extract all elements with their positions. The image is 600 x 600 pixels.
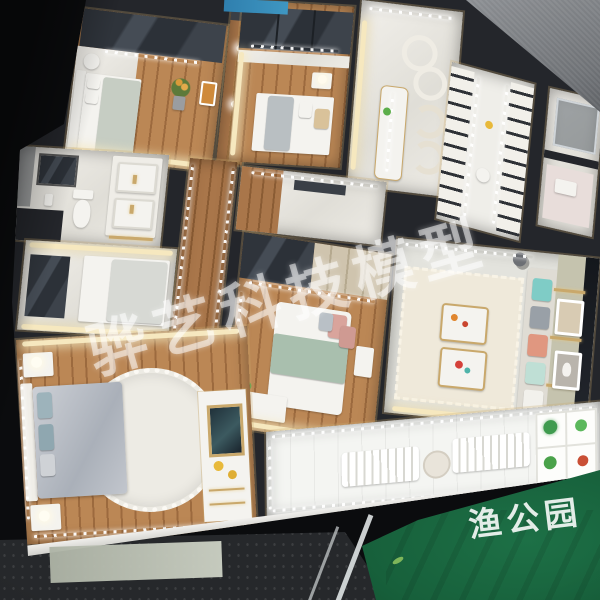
bedroom1-plant [168, 71, 195, 100]
kitchen-counter-right [496, 82, 534, 237]
room-bathroom [11, 146, 170, 249]
art-bird [562, 362, 572, 377]
bath-right-lower [542, 164, 593, 228]
balcony-table [423, 449, 451, 480]
master-pillow-gray [40, 454, 56, 477]
console-gold-shelf-2 [210, 501, 246, 505]
dining-hoop-chair-2 [412, 65, 448, 103]
small-bedroom-tv-niche [24, 254, 70, 318]
balcony-leds-left [268, 440, 272, 510]
bathroom-toilet-tank [73, 189, 94, 199]
room-bedroom-2 [228, 0, 354, 168]
bathroom-mirror [36, 153, 79, 187]
bedroom3-pillow-pink-2 [338, 325, 356, 349]
bedroom1-plant-pot [172, 95, 186, 110]
sofa-pillow-teal [531, 278, 552, 302]
bedroom2-blanket [264, 96, 295, 151]
console-lemon-plate-2 [228, 470, 237, 480]
balcony-lounge-chair [342, 446, 420, 487]
room-bath-right [538, 88, 600, 237]
table2-decor-teal [464, 367, 470, 374]
table-decor-orange [451, 314, 458, 322]
living-coffee-table-2 [437, 347, 487, 392]
table-decor-red [462, 321, 468, 328]
shelf-plant-2 [575, 419, 587, 432]
bedroom1-pillow [86, 77, 100, 89]
bedroom1-wall-frame [199, 81, 218, 107]
master-tv-console [198, 389, 252, 522]
sofa-pillow-gray [529, 306, 550, 330]
living-art-frame-2 [552, 350, 582, 391]
master-pillow-blue [37, 392, 53, 419]
sofa-pillow-mint [525, 361, 546, 385]
dining-leds [369, 7, 452, 20]
bedroom1-pillow-2 [85, 92, 99, 104]
shelf-plant-red [577, 455, 588, 467]
console-lemon-plate [213, 461, 223, 472]
sofa-pillow-coral [527, 334, 548, 358]
kitchen-lemon [485, 120, 493, 130]
living-coffee-table [439, 303, 489, 346]
bathroom-wall-notch [11, 208, 64, 243]
console-gold-shelf [209, 487, 245, 491]
bathroom-shower-glass [14, 146, 36, 207]
kitchen-plates [476, 166, 491, 184]
dining-led-strip [350, 20, 367, 170]
bedroom2-pillow-tan [313, 108, 330, 129]
shelf-plant-1 [543, 420, 557, 435]
bath-right-glass [553, 98, 600, 155]
bathroom-toilet [72, 199, 92, 228]
shelf-plant-3 [544, 456, 557, 470]
bedroom2-pillow [298, 101, 312, 118]
console-tv [207, 403, 245, 457]
living-art-frame [554, 298, 584, 337]
dining-c-chair [411, 103, 447, 141]
balcony-lounge-chair-2 [452, 432, 530, 473]
bedroom1-blanket [94, 77, 141, 159]
photo-of-apartment-model: 渔公园 骅艺科技模型 [0, 0, 600, 600]
bedroom3-side-table [354, 346, 375, 378]
table2-decor-red [455, 360, 463, 369]
room-bedroom-1 [64, 8, 228, 172]
bathroom-switch [44, 194, 53, 206]
base-stand-panel [49, 541, 222, 583]
master-pillow-blue-2 [38, 424, 54, 451]
